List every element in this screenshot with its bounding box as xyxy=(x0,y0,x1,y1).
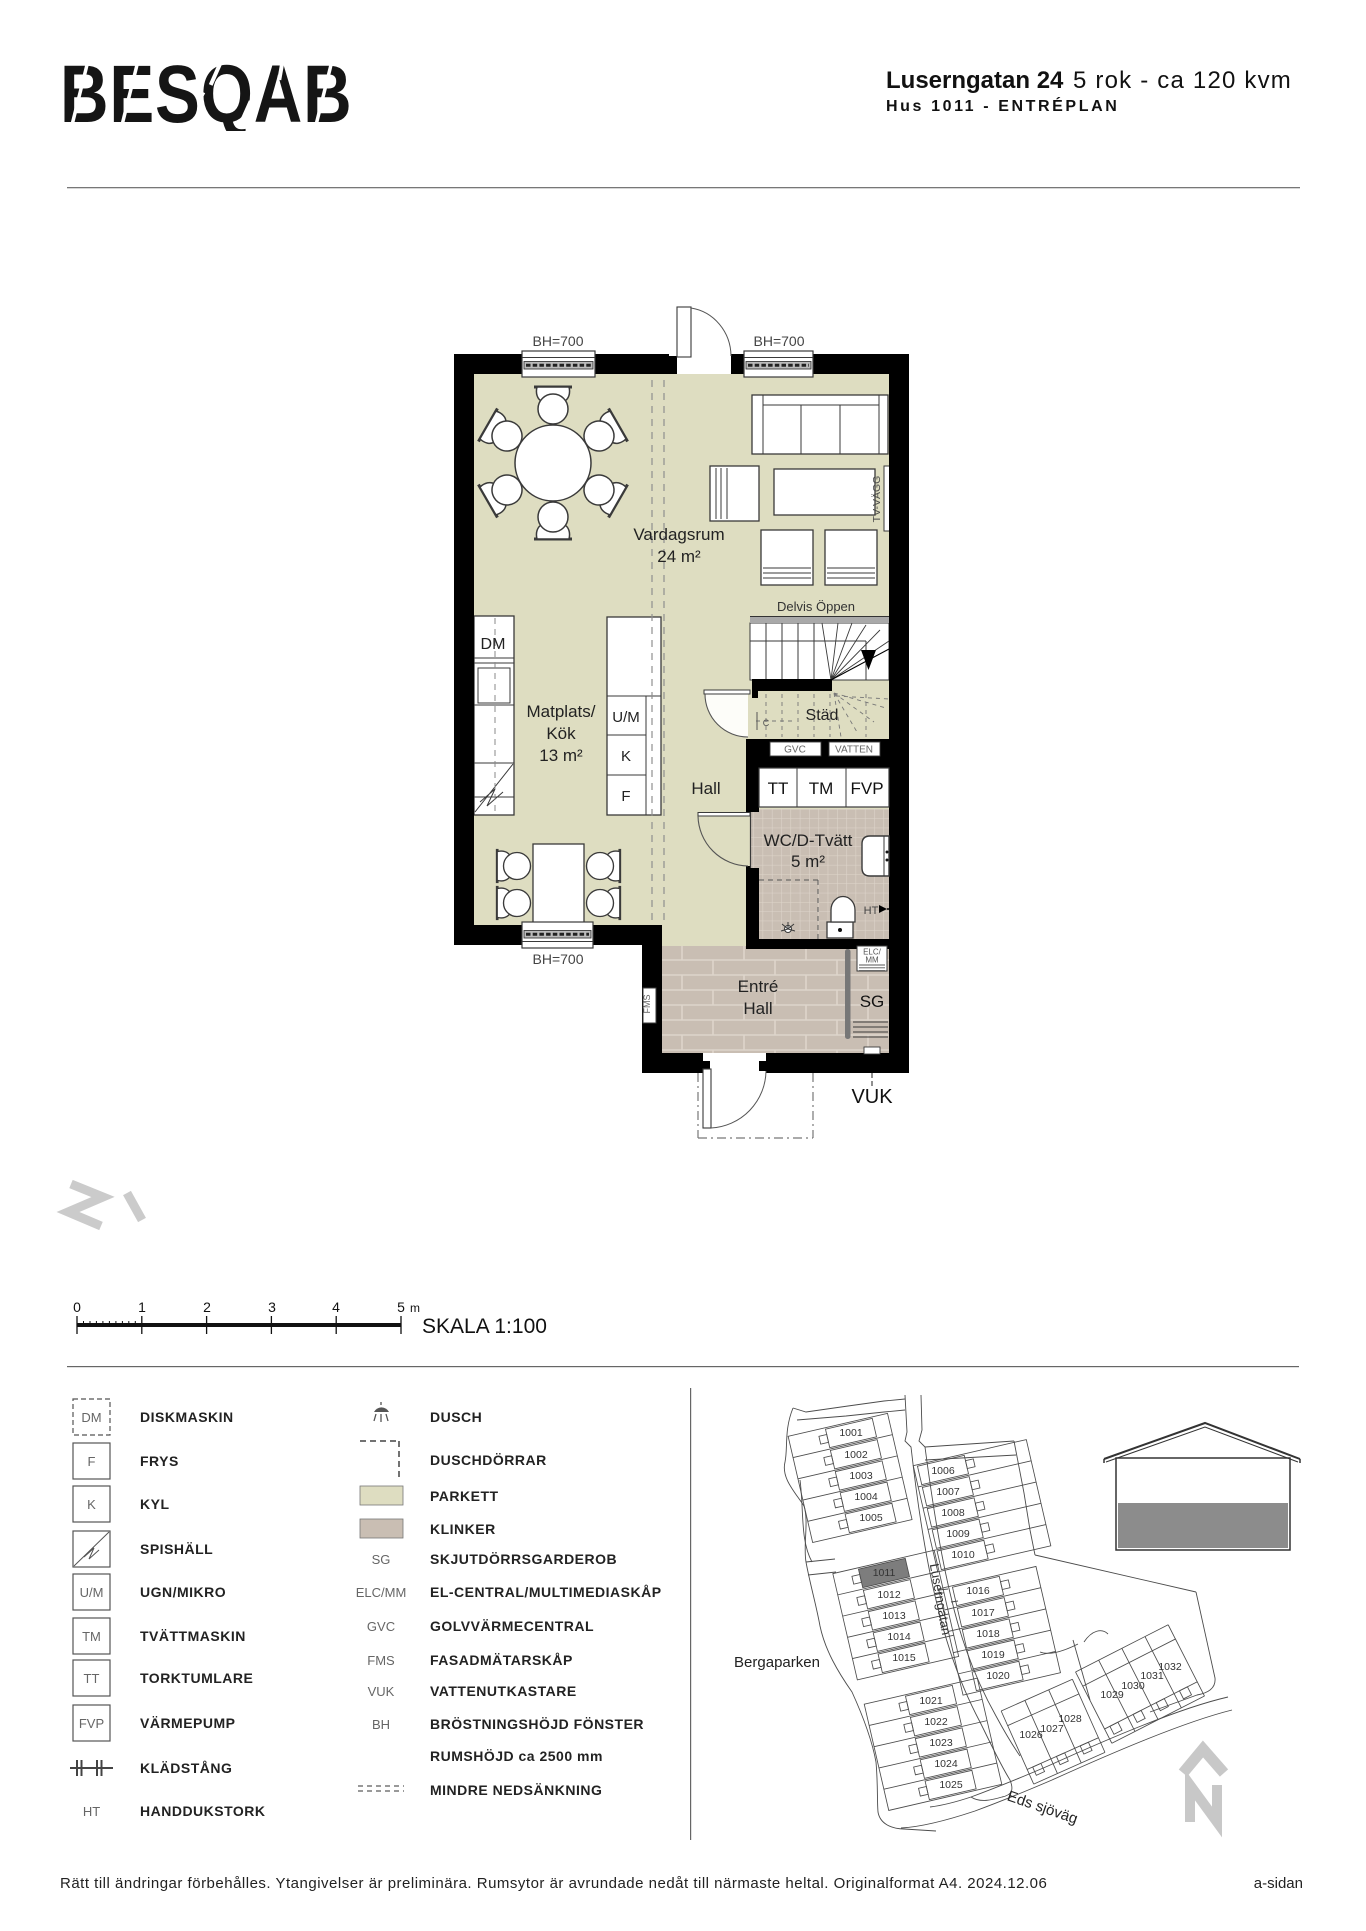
svg-text:K: K xyxy=(87,1497,96,1512)
svg-text:Hall: Hall xyxy=(743,999,772,1018)
svg-text:1014: 1014 xyxy=(887,1631,911,1643)
svg-text:U/M: U/M xyxy=(80,1585,104,1600)
svg-text:1015: 1015 xyxy=(892,1652,916,1664)
svg-text:BH: BH xyxy=(372,1717,390,1732)
svg-text:1: 1 xyxy=(138,1299,146,1315)
svg-text:Vardagsrum: Vardagsrum xyxy=(633,525,724,544)
svg-text:1032: 1032 xyxy=(1158,1661,1182,1673)
svg-text:SKALA 1:100: SKALA 1:100 xyxy=(422,1315,547,1338)
svg-text:BH=700: BH=700 xyxy=(533,333,584,349)
svg-text:1004: 1004 xyxy=(854,1491,878,1503)
svg-text:Hus 1011 - ENTRÉPLAN: Hus 1011 - ENTRÉPLAN xyxy=(886,96,1119,115)
svg-text:1029: 1029 xyxy=(1100,1689,1124,1701)
svg-text:1028: 1028 xyxy=(1058,1713,1082,1725)
svg-text:Bergaparken: Bergaparken xyxy=(734,1654,820,1671)
svg-text:1013: 1013 xyxy=(882,1610,906,1622)
svg-text:5 rok - ca 120 kvm: 5 rok - ca 120 kvm xyxy=(1073,67,1292,94)
svg-text:HT: HT xyxy=(864,905,879,917)
svg-text:KLINKER: KLINKER xyxy=(430,1521,496,1537)
svg-text:1019: 1019 xyxy=(981,1649,1005,1661)
svg-text:GVC: GVC xyxy=(367,1619,395,1634)
svg-text:Matplats/: Matplats/ xyxy=(527,702,596,721)
svg-text:DUSCHDÖRRAR: DUSCHDÖRRAR xyxy=(430,1452,547,1468)
svg-text:1003: 1003 xyxy=(849,1470,873,1482)
svg-text:GOLVVÄRMECENTRAL: GOLVVÄRMECENTRAL xyxy=(430,1618,594,1634)
svg-text:BH=700: BH=700 xyxy=(533,951,584,967)
svg-text:SG: SG xyxy=(860,992,885,1011)
svg-text:VUK: VUK xyxy=(851,1086,893,1108)
svg-text:DM: DM xyxy=(481,636,506,653)
svg-text:SKJUTDÖRRSGARDEROB: SKJUTDÖRRSGARDEROB xyxy=(430,1551,617,1567)
svg-text:DM: DM xyxy=(81,1410,101,1425)
svg-text:MM: MM xyxy=(865,956,879,965)
svg-text:KLÄDSTÅNG: KLÄDSTÅNG xyxy=(140,1760,232,1776)
svg-text:C: C xyxy=(763,718,770,728)
svg-text:Rätt till ändringar förbehålle: Rätt till ändringar förbehålles. Ytangiv… xyxy=(60,1875,1047,1892)
svg-text:1020: 1020 xyxy=(986,1670,1010,1682)
svg-text:K: K xyxy=(621,748,631,765)
svg-text:13 m²: 13 m² xyxy=(539,746,583,765)
svg-text:TM: TM xyxy=(82,1629,101,1644)
svg-text:MINDRE NEDSÄNKNING: MINDRE NEDSÄNKNING xyxy=(430,1782,602,1798)
svg-text:SPISHÄLL: SPISHÄLL xyxy=(140,1541,213,1557)
svg-text:1008: 1008 xyxy=(941,1507,965,1519)
svg-text:1012: 1012 xyxy=(877,1589,901,1601)
svg-text:RUMSHÖJD ca 2500 mm: RUMSHÖJD ca 2500 mm xyxy=(430,1748,603,1764)
svg-text:F: F xyxy=(621,788,630,805)
svg-text:Luserngatan: Luserngatan xyxy=(927,1562,954,1636)
svg-text:1022: 1022 xyxy=(924,1716,948,1728)
svg-text:U/M: U/M xyxy=(612,709,640,726)
svg-text:TT: TT xyxy=(768,779,789,798)
svg-text:2: 2 xyxy=(203,1299,211,1315)
svg-text:1009: 1009 xyxy=(946,1528,970,1540)
svg-text:FRYS: FRYS xyxy=(140,1453,179,1469)
svg-text:1005: 1005 xyxy=(859,1512,883,1524)
svg-text:Entré: Entré xyxy=(738,977,779,996)
svg-text:VÄRMEPUMP: VÄRMEPUMP xyxy=(140,1715,236,1731)
svg-text:VATTENUTKASTARE: VATTENUTKASTARE xyxy=(430,1683,577,1699)
svg-text:VATTEN: VATTEN xyxy=(835,745,873,756)
svg-text:GVC: GVC xyxy=(784,745,806,756)
svg-text:1017: 1017 xyxy=(971,1607,995,1619)
svg-text:WC/D-Tvätt: WC/D-Tvätt xyxy=(764,831,853,850)
svg-text:1011: 1011 xyxy=(873,1567,896,1579)
svg-text:Kök: Kök xyxy=(546,724,576,743)
svg-text:DISKMASKIN: DISKMASKIN xyxy=(140,1409,234,1425)
svg-text:m: m xyxy=(410,1301,420,1315)
svg-text:Luserngatan 24: Luserngatan 24 xyxy=(886,67,1064,94)
svg-text:FVP: FVP xyxy=(79,1716,104,1731)
svg-text:Eds sjöväg: Eds sjöväg xyxy=(1005,1788,1080,1828)
svg-text:1018: 1018 xyxy=(976,1628,1000,1640)
svg-text:PARKETT: PARKETT xyxy=(430,1488,499,1504)
svg-text:TT: TT xyxy=(84,1671,100,1686)
svg-text:5: 5 xyxy=(397,1299,405,1315)
svg-text:UGN/MIKRO: UGN/MIKRO xyxy=(140,1584,226,1600)
svg-text:FMS: FMS xyxy=(642,995,652,1014)
svg-text:1016: 1016 xyxy=(966,1585,990,1597)
svg-text:VUK: VUK xyxy=(368,1684,395,1699)
svg-text:1021: 1021 xyxy=(919,1695,943,1707)
svg-text:BESQAB: BESQAB xyxy=(60,48,353,140)
svg-text:Hall: Hall xyxy=(691,779,720,798)
svg-text:FASADMÄTARSKÅP: FASADMÄTARSKÅP xyxy=(430,1652,573,1668)
svg-text:1002: 1002 xyxy=(844,1449,868,1461)
svg-text:3: 3 xyxy=(268,1299,276,1315)
svg-text:BRÖSTNINGSHÖJD FÖNSTER: BRÖSTNINGSHÖJD FÖNSTER xyxy=(430,1716,644,1732)
svg-text:EL-CENTRAL/MULTIMEDIASKÅP: EL-CENTRAL/MULTIMEDIASKÅP xyxy=(430,1584,662,1600)
svg-text:TVÄTTMASKIN: TVÄTTMASKIN xyxy=(140,1628,246,1644)
svg-text:1023: 1023 xyxy=(929,1737,953,1749)
svg-text:1006: 1006 xyxy=(931,1465,955,1477)
svg-text:Delvis Öppen: Delvis Öppen xyxy=(777,599,855,614)
svg-text:BH=700: BH=700 xyxy=(754,333,805,349)
svg-text:4: 4 xyxy=(332,1299,340,1315)
svg-text:TORKTUMLARE: TORKTUMLARE xyxy=(140,1670,253,1686)
svg-text:F: F xyxy=(88,1454,96,1469)
svg-text:0: 0 xyxy=(73,1299,81,1315)
svg-text:DUSCH: DUSCH xyxy=(430,1409,482,1425)
svg-text:1001: 1001 xyxy=(839,1427,863,1439)
svg-text:TV-VÄGG: TV-VÄGG xyxy=(871,476,883,523)
svg-text:a-sidan: a-sidan xyxy=(1254,1875,1303,1892)
svg-text:1026: 1026 xyxy=(1019,1729,1043,1741)
svg-text:Städ: Städ xyxy=(806,707,839,724)
svg-text:1007: 1007 xyxy=(936,1486,960,1498)
svg-text:FVP: FVP xyxy=(850,779,883,798)
svg-text:1010: 1010 xyxy=(951,1549,975,1561)
svg-text:ELC/MM: ELC/MM xyxy=(356,1585,407,1600)
svg-text:1025: 1025 xyxy=(939,1779,963,1791)
svg-text:TM: TM xyxy=(809,779,834,798)
svg-text:5 m²: 5 m² xyxy=(791,852,825,871)
svg-text:1024: 1024 xyxy=(934,1758,958,1770)
svg-text:FMS: FMS xyxy=(367,1653,395,1668)
svg-text:HT: HT xyxy=(83,1804,100,1819)
svg-text:HANDDUKSTORK: HANDDUKSTORK xyxy=(140,1803,266,1819)
svg-text:KYL: KYL xyxy=(140,1496,170,1512)
svg-text:24 m²: 24 m² xyxy=(657,547,701,566)
svg-text:SG: SG xyxy=(372,1552,391,1567)
